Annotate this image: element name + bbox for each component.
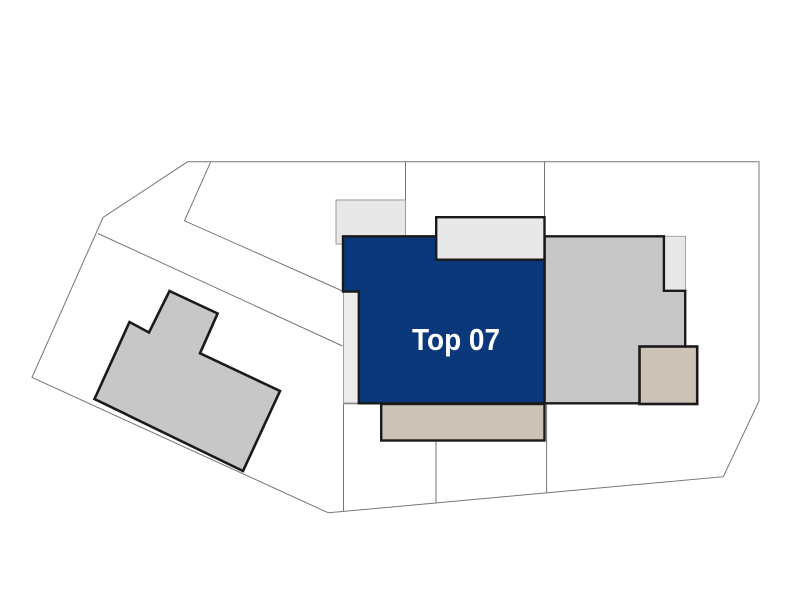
- svg-text:Top 07: Top 07: [412, 322, 500, 357]
